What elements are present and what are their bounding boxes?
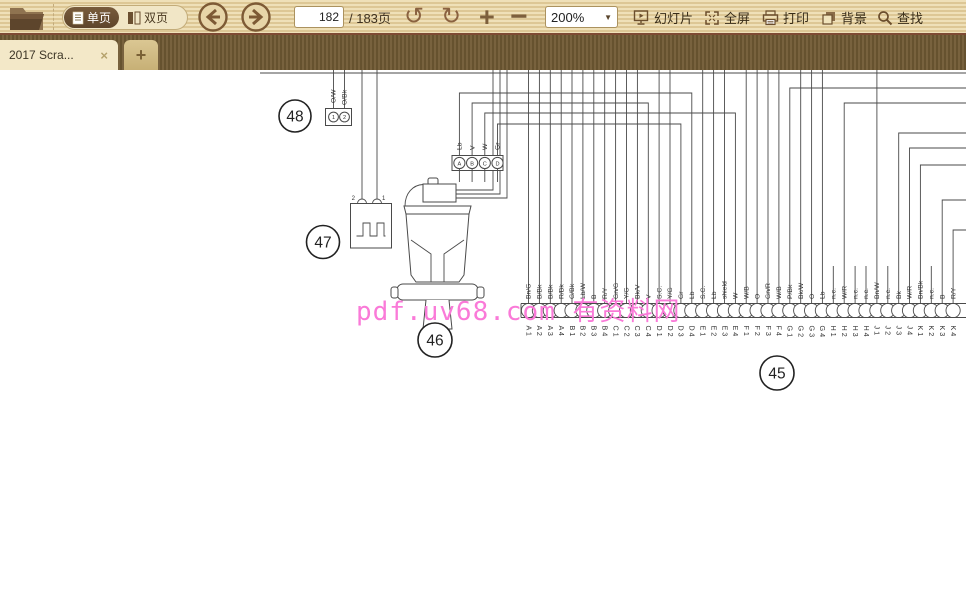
single-page-button[interactable]: 单页 (64, 7, 119, 28)
pin-id-label: K 1 (916, 326, 925, 337)
rotate-ccw-button[interactable]: ↺ (404, 0, 424, 34)
tab-document[interactable]: 2017 Scra... × (0, 40, 118, 70)
pin-wire (498, 124, 681, 304)
connector-48: 1 2 O/W O/Bk (326, 70, 352, 126)
component-47-sensor: 2 1 (351, 70, 392, 248)
ecu-pin-circle (946, 303, 960, 317)
close-icon[interactable]: × (100, 48, 108, 63)
pin-wire-label: W/B (743, 286, 750, 299)
pin-wire (899, 133, 966, 304)
toolbar: 单页 双页 / 183页 (0, 0, 966, 35)
svg-text:48: 48 (286, 109, 303, 126)
pin-wire-label: n.c. (852, 288, 859, 299)
find-label: 查找 (897, 8, 923, 27)
tab-title: 2017 Scra... (9, 48, 100, 62)
print-label: 打印 (783, 8, 809, 27)
zoom-out-button[interactable]: − (510, 0, 528, 34)
pin-id-label: K 4 (949, 326, 958, 337)
single-page-icon (72, 11, 84, 25)
watermark: pdf.uv68.com 有资料网 (356, 297, 681, 327)
pin-id-label: J 2 (884, 326, 893, 336)
terminal-number: 1 (382, 196, 386, 202)
pin-number: 1 (332, 115, 335, 121)
pin-wire-label: B (939, 294, 946, 299)
pin-wire-label: W (733, 292, 740, 299)
pin-id-label: H 1 (829, 326, 838, 337)
pin-id-label: E 2 (709, 326, 718, 337)
pin-id-label: C 4 (644, 326, 653, 337)
pin-wire-label: Gn/R (765, 283, 772, 299)
single-page-label: 单页 (87, 9, 111, 26)
arrow-right-icon (240, 1, 272, 33)
pin-wire-label: n.c. (929, 288, 936, 299)
pin-wire-label: R/Y (950, 287, 957, 299)
pin-id-label: E 1 (699, 326, 708, 337)
wiring-diagram: Bn/GA 1B/BkA 2B/BkA 3R/BkA 4G/BkB 1Lb/WB… (0, 70, 966, 609)
slideshow-button[interactable]: 幻灯片 (633, 0, 693, 35)
svg-text:46: 46 (426, 333, 443, 350)
pin-id-label: C 1 (611, 326, 620, 337)
next-page-button[interactable] (240, 1, 272, 33)
slideshow-label: 幻灯片 (654, 8, 693, 27)
background-label: 背景 (841, 8, 867, 27)
pin-id-label: B 1 (568, 326, 577, 337)
previous-page-button[interactable] (197, 1, 229, 33)
terminal-number: 2 (352, 196, 356, 202)
search-icon (877, 10, 893, 26)
pin-id-label: B 3 (590, 326, 599, 337)
background-icon (821, 10, 837, 26)
pin-wire-label: n.c. (885, 288, 892, 299)
pin-id-label: K 3 (938, 326, 947, 337)
wire-label: Lb (457, 142, 464, 150)
pin-id-label: A 4 (557, 326, 566, 336)
folder-icon (7, 2, 47, 33)
zoom-in-button[interactable]: + (479, 0, 495, 34)
pin-wire-label: Lb (711, 291, 718, 299)
new-tab-button[interactable]: + (124, 40, 158, 70)
pin-wire-label: Bn/Bk (918, 280, 925, 299)
pin-id-label: A 1 (524, 326, 533, 336)
page-total-label: / 183页 (349, 8, 391, 27)
pin-wire (910, 148, 966, 304)
fullscreen-button[interactable]: 全屏 (704, 0, 750, 35)
open-file-button[interactable] (7, 2, 47, 33)
pin-id-label: J 1 (873, 326, 882, 336)
wire-label: O/Bk (342, 89, 349, 105)
pin-id-label: F 4 (775, 326, 784, 336)
pin-id-label: D 4 (688, 326, 697, 337)
pin-number: 2 (343, 115, 346, 121)
pin-wire-label: Bn/W (874, 282, 881, 299)
pin-wire-label: n.c. (831, 288, 838, 299)
pin-wire (920, 165, 966, 304)
pin-id-label: D 2 (666, 326, 675, 337)
pin-wire-label: P/Bk (787, 284, 794, 299)
callout-47: 47 (307, 226, 340, 259)
callout-46: 46 (418, 323, 452, 357)
connector-abcd: A B C D Lb V W Gr (452, 142, 503, 182)
plus-icon: + (136, 45, 147, 66)
pin-wire-label: W/R (907, 286, 914, 299)
pin-id-label: G 4 (818, 326, 827, 338)
pin-wire-label: shield (722, 281, 729, 299)
slideshow-icon (633, 9, 650, 26)
pin-id-label: E 4 (731, 326, 740, 337)
pin-id-label: H 4 (862, 326, 871, 337)
pin-wire-label: Lb (689, 291, 696, 299)
pin-id-label: D 3 (677, 326, 686, 337)
svg-text:45: 45 (768, 366, 785, 383)
pdf-reader-window: 单页 双页 / 183页 (0, 0, 966, 609)
page-mode-group: 单页 双页 (62, 5, 188, 30)
double-page-icon (127, 11, 141, 25)
pin-id-label: J 4 (905, 326, 914, 336)
pin-id-label: B 2 (579, 326, 588, 337)
pin-wire-label: O (754, 294, 761, 299)
pin-id-label: A 3 (546, 326, 555, 336)
pin-id-label: F 2 (753, 326, 762, 336)
pin-id-label: K 2 (927, 326, 936, 337)
double-page-button[interactable]: 双页 (119, 7, 176, 28)
pin-letter: A (458, 161, 462, 167)
page-navigation: / 183页 (294, 6, 391, 28)
wire-label: W (482, 143, 489, 150)
tab-bar: 2017 Scra... × + (0, 35, 966, 70)
pin-wire-label: W/R (841, 286, 848, 299)
pin-id-label: C 2 (622, 326, 631, 337)
pin-id-label: F 1 (742, 326, 751, 336)
pin-wire-label: W/B (776, 286, 783, 299)
pin-letter: B (470, 161, 474, 167)
callout-45: 45 (760, 356, 794, 390)
pin-id-label: C 3 (633, 326, 642, 337)
pin-id-label: G 2 (797, 326, 806, 338)
page-number-input[interactable] (294, 6, 344, 28)
print-button[interactable]: 打印 (762, 0, 809, 35)
pin-id-label: H 2 (840, 326, 849, 337)
pin-wire-label: Bk/W (798, 282, 805, 299)
document-page[interactable]: Bn/GA 1B/BkA 2B/BkA 3R/BkA 4G/BkB 1Lb/WB… (0, 70, 966, 609)
pin-wire (472, 103, 648, 304)
chevron-down-icon: ▼ (604, 13, 612, 22)
component-46-valve (391, 70, 507, 329)
pin-wire-label: S.C. (700, 286, 707, 299)
print-icon (762, 10, 779, 26)
arrow-left-icon (197, 1, 229, 33)
pin-wire-label: O (809, 294, 816, 299)
double-page-label: 双页 (144, 9, 168, 26)
pin-id-label: A 2 (535, 326, 544, 336)
fullscreen-icon (704, 10, 720, 26)
pin-wire (485, 113, 736, 304)
pin-letter: D (495, 161, 499, 167)
pin-id-label: G 3 (807, 326, 816, 338)
pin-letter: C (483, 161, 487, 167)
fullscreen-label: 全屏 (724, 8, 750, 27)
wire-label: O/W (331, 89, 338, 103)
pin-wire-label: Lb (820, 291, 827, 299)
wire-label: V (469, 145, 476, 150)
pin-id-label: H 3 (851, 326, 860, 337)
pin-id-label: D 1 (655, 326, 664, 337)
toolbar-separator (53, 4, 54, 30)
pin-id-label: B 4 (601, 326, 610, 337)
pin-wire-label: Bk (896, 290, 903, 299)
find-button[interactable]: 查找 (877, 0, 923, 35)
pin-wire (790, 88, 966, 304)
zoom-level-value: 200% (551, 10, 584, 25)
pin-id-label: J 3 (895, 326, 904, 336)
callout-48: 48 (279, 100, 311, 132)
background-button[interactable]: 背景 (821, 0, 867, 35)
pin-id-label: G 1 (786, 326, 795, 338)
svg-text:47: 47 (314, 235, 331, 252)
rotate-cw-button[interactable]: ↻ (441, 0, 461, 34)
pin-id-label: F 3 (764, 326, 773, 336)
pin-id-label: E 3 (720, 326, 729, 337)
pin-wire-label: n.c. (863, 288, 870, 299)
zoom-level-select[interactable]: 200% ▼ (545, 6, 618, 28)
wire-label: Gr (495, 142, 502, 150)
